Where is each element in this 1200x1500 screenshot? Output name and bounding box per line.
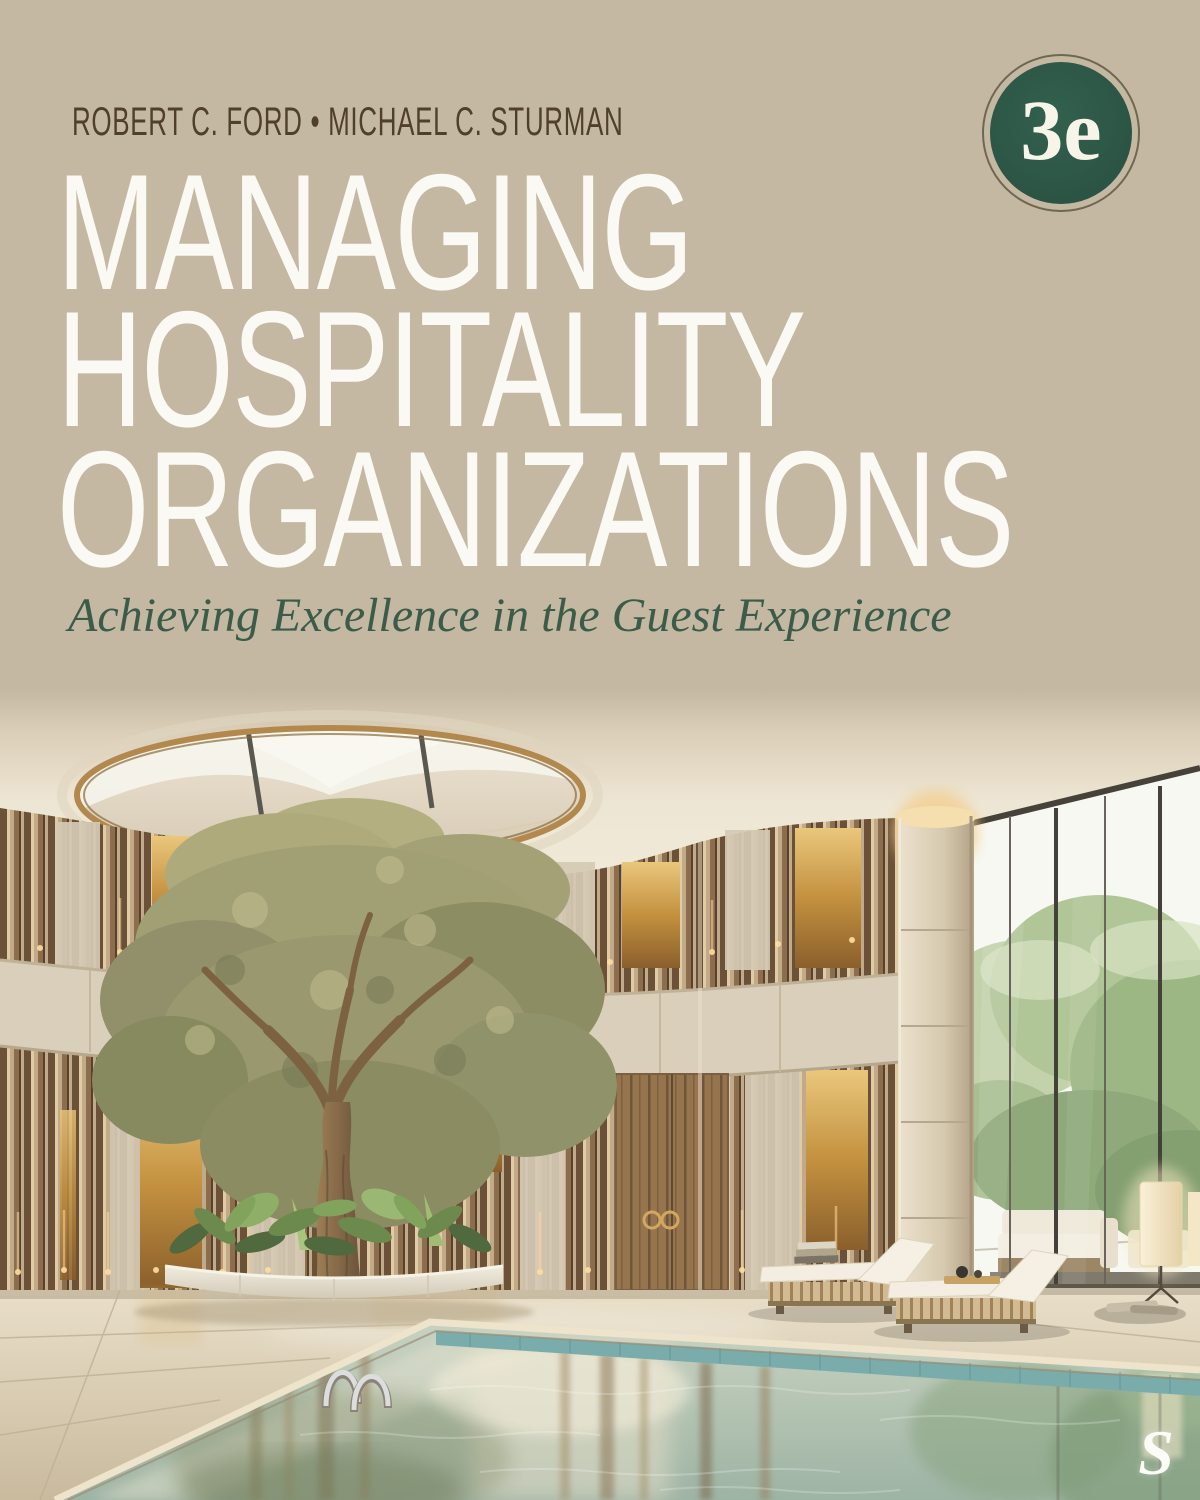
subtitle: Achieving Excellence in the Guest Experi… bbox=[68, 588, 952, 643]
sage-publisher-logo: S bbox=[1126, 1418, 1186, 1488]
title-line-3: ORGANIZATIONS bbox=[57, 427, 1013, 592]
stone-column bbox=[894, 790, 978, 1290]
edition-badge-circle: 3e bbox=[990, 62, 1132, 204]
edition-badge-text: 3e bbox=[1020, 80, 1101, 180]
towel-stack bbox=[794, 1241, 839, 1264]
author-line: ROBERT C. FORD • MICHAEL C. STURMAN bbox=[72, 100, 623, 145]
wood-doors bbox=[616, 1074, 728, 1290]
sage-s-letterform: S bbox=[1138, 1416, 1174, 1490]
edition-badge: 3e bbox=[982, 54, 1140, 212]
book-cover: ROBERT C. FORD • MICHAEL C. STURMAN 3e M… bbox=[0, 0, 1200, 1500]
cover-photo bbox=[0, 690, 1200, 1500]
